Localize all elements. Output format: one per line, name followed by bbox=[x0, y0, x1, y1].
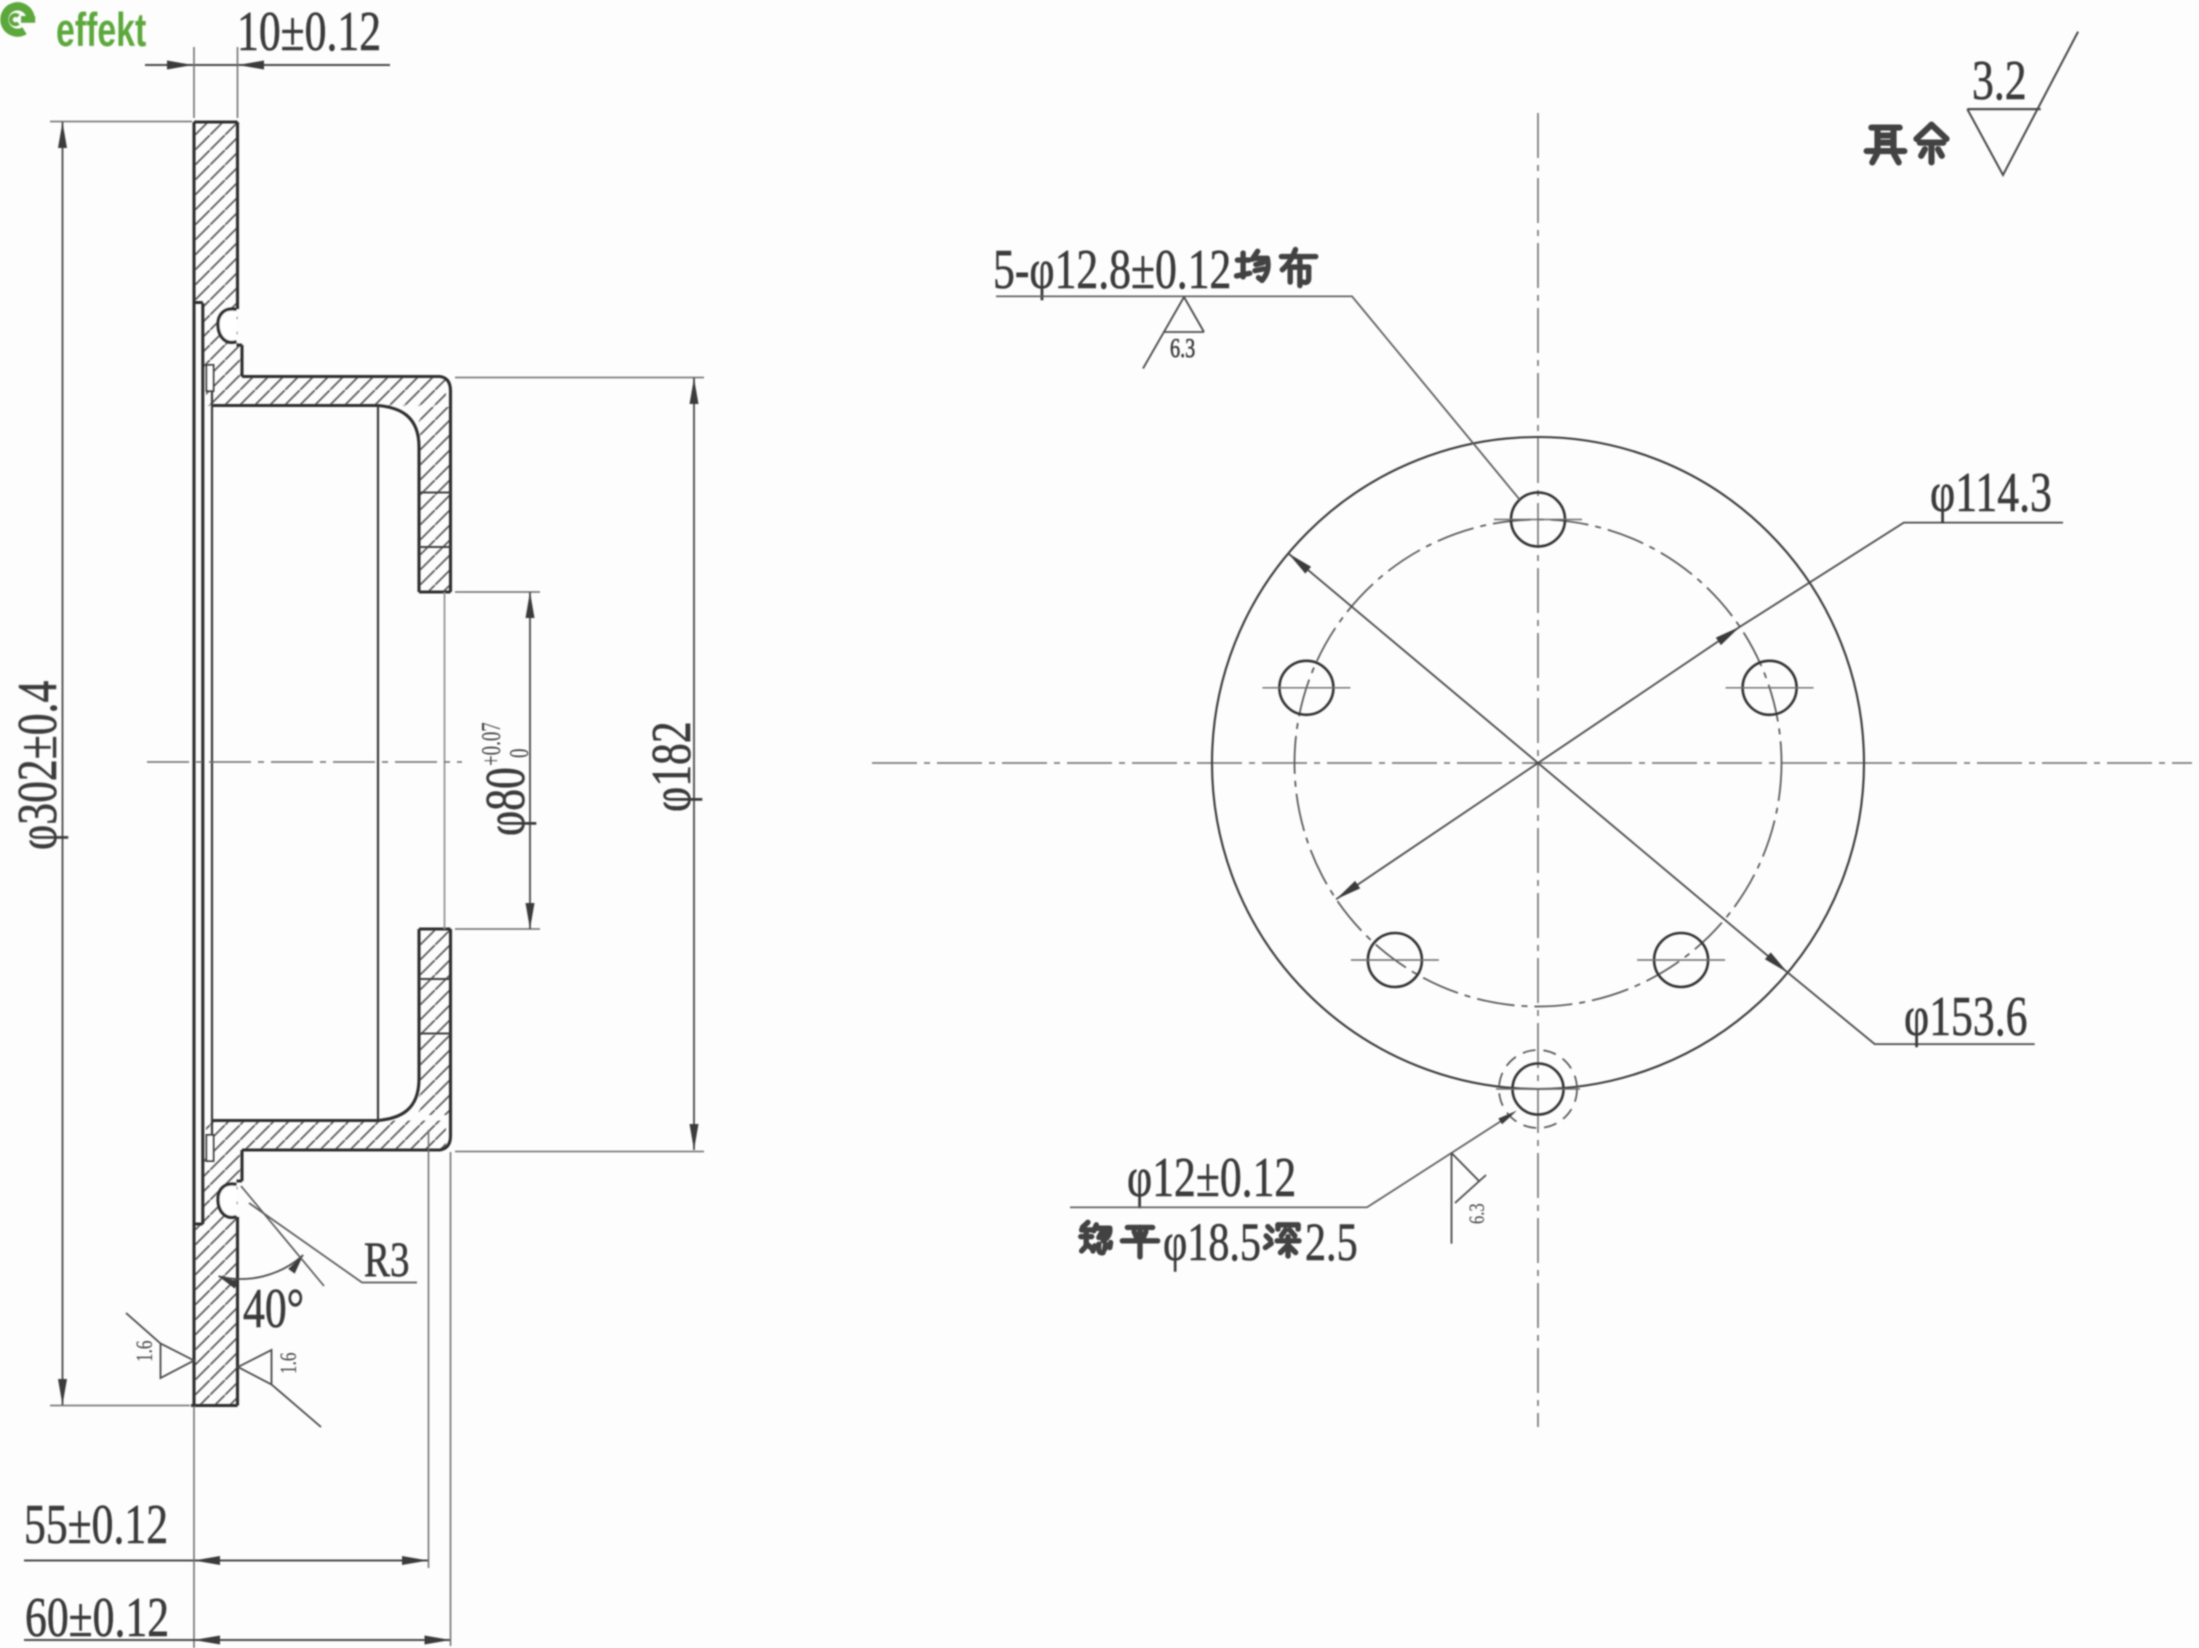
svg-text:φ18.5: φ18.5 bbox=[1163, 1213, 1261, 1272]
svg-text:φ302±0.4: φ302±0.4 bbox=[6, 681, 68, 850]
svg-text:+0.07: +0.07 bbox=[477, 722, 507, 766]
svg-text:5-φ12.8±0.12: 5-φ12.8±0.12 bbox=[993, 238, 1231, 300]
svg-text:40°: 40° bbox=[243, 1277, 304, 1339]
svg-text:φ114.3: φ114.3 bbox=[1930, 461, 2052, 523]
svg-text:3.2: 3.2 bbox=[1972, 49, 2027, 111]
svg-text:φ80: φ80 bbox=[474, 767, 536, 836]
svg-text:0: 0 bbox=[505, 749, 535, 758]
svg-text:φ153.6: φ153.6 bbox=[1904, 985, 2027, 1047]
svg-text:2.5: 2.5 bbox=[1305, 1213, 1358, 1272]
svg-text:φ12±0.12: φ12±0.12 bbox=[1127, 1146, 1296, 1208]
svg-text:6.3: 6.3 bbox=[1466, 1203, 1490, 1224]
svg-text:55±0.12: 55±0.12 bbox=[24, 1493, 168, 1555]
svg-text:1.6: 1.6 bbox=[277, 1352, 302, 1374]
svg-text:10±0.12: 10±0.12 bbox=[237, 0, 381, 62]
svg-text:effekt: effekt bbox=[56, 4, 147, 57]
svg-text:R3: R3 bbox=[364, 1231, 410, 1287]
svg-text:φ182: φ182 bbox=[640, 721, 702, 812]
svg-text:1.6: 1.6 bbox=[133, 1340, 158, 1362]
svg-text:6.3: 6.3 bbox=[1170, 334, 1195, 363]
svg-text:60±0.12: 60±0.12 bbox=[25, 1586, 169, 1648]
